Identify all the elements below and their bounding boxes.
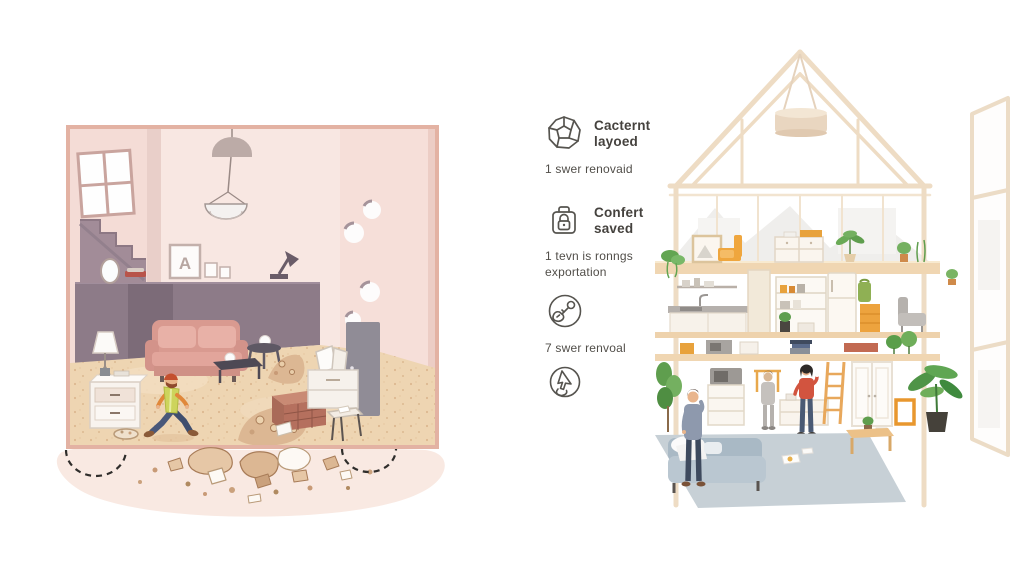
red-book: [125, 268, 146, 277]
cursor-click-icon: [545, 363, 585, 403]
infographic-canvas: A: [0, 0, 1024, 585]
orange-stool-frame: [896, 400, 914, 424]
debris-tray: [114, 429, 138, 439]
glass-door-panel: [972, 98, 1008, 455]
kitchen-right-plant: [946, 269, 958, 285]
small-frame-1: [205, 263, 217, 277]
book: [114, 371, 129, 376]
small-frame-2: [220, 267, 230, 278]
fridge: [828, 273, 856, 333]
radio: [100, 368, 110, 376]
picture-frame-a: A: [170, 245, 200, 278]
frame-letter: A: [179, 254, 191, 273]
sink-unit: [668, 295, 748, 333]
after-house-scene: [640, 40, 1024, 520]
padlock-icon: [545, 201, 583, 239]
tall-cabinet: [748, 270, 770, 333]
living-level: [655, 362, 965, 508]
window: [78, 150, 134, 216]
green-canister: [858, 280, 871, 302]
french-doors: [852, 362, 892, 426]
microwave-cart: [708, 368, 744, 425]
standing-person-gray: [761, 371, 776, 430]
gem-icon: [545, 114, 583, 152]
open-shelf-unit: [776, 277, 826, 333]
before-room-scene: A: [40, 100, 460, 530]
mirror: [101, 259, 119, 283]
orange-cabinet: [860, 304, 880, 333]
sofa: [145, 320, 248, 382]
before-renovation-illustration: A: [40, 100, 460, 530]
kitchen-level: [668, 269, 958, 333]
nightstand: [90, 368, 147, 428]
feature-title: Confert saved: [594, 201, 643, 238]
loft-picture-frame: [693, 236, 721, 262]
after-renovation-illustration: [640, 40, 1024, 520]
corner-column: [147, 129, 161, 283]
hand-key-icon: [545, 291, 585, 331]
storage-shelf-band: [655, 331, 940, 361]
loft-floor: [655, 262, 940, 274]
